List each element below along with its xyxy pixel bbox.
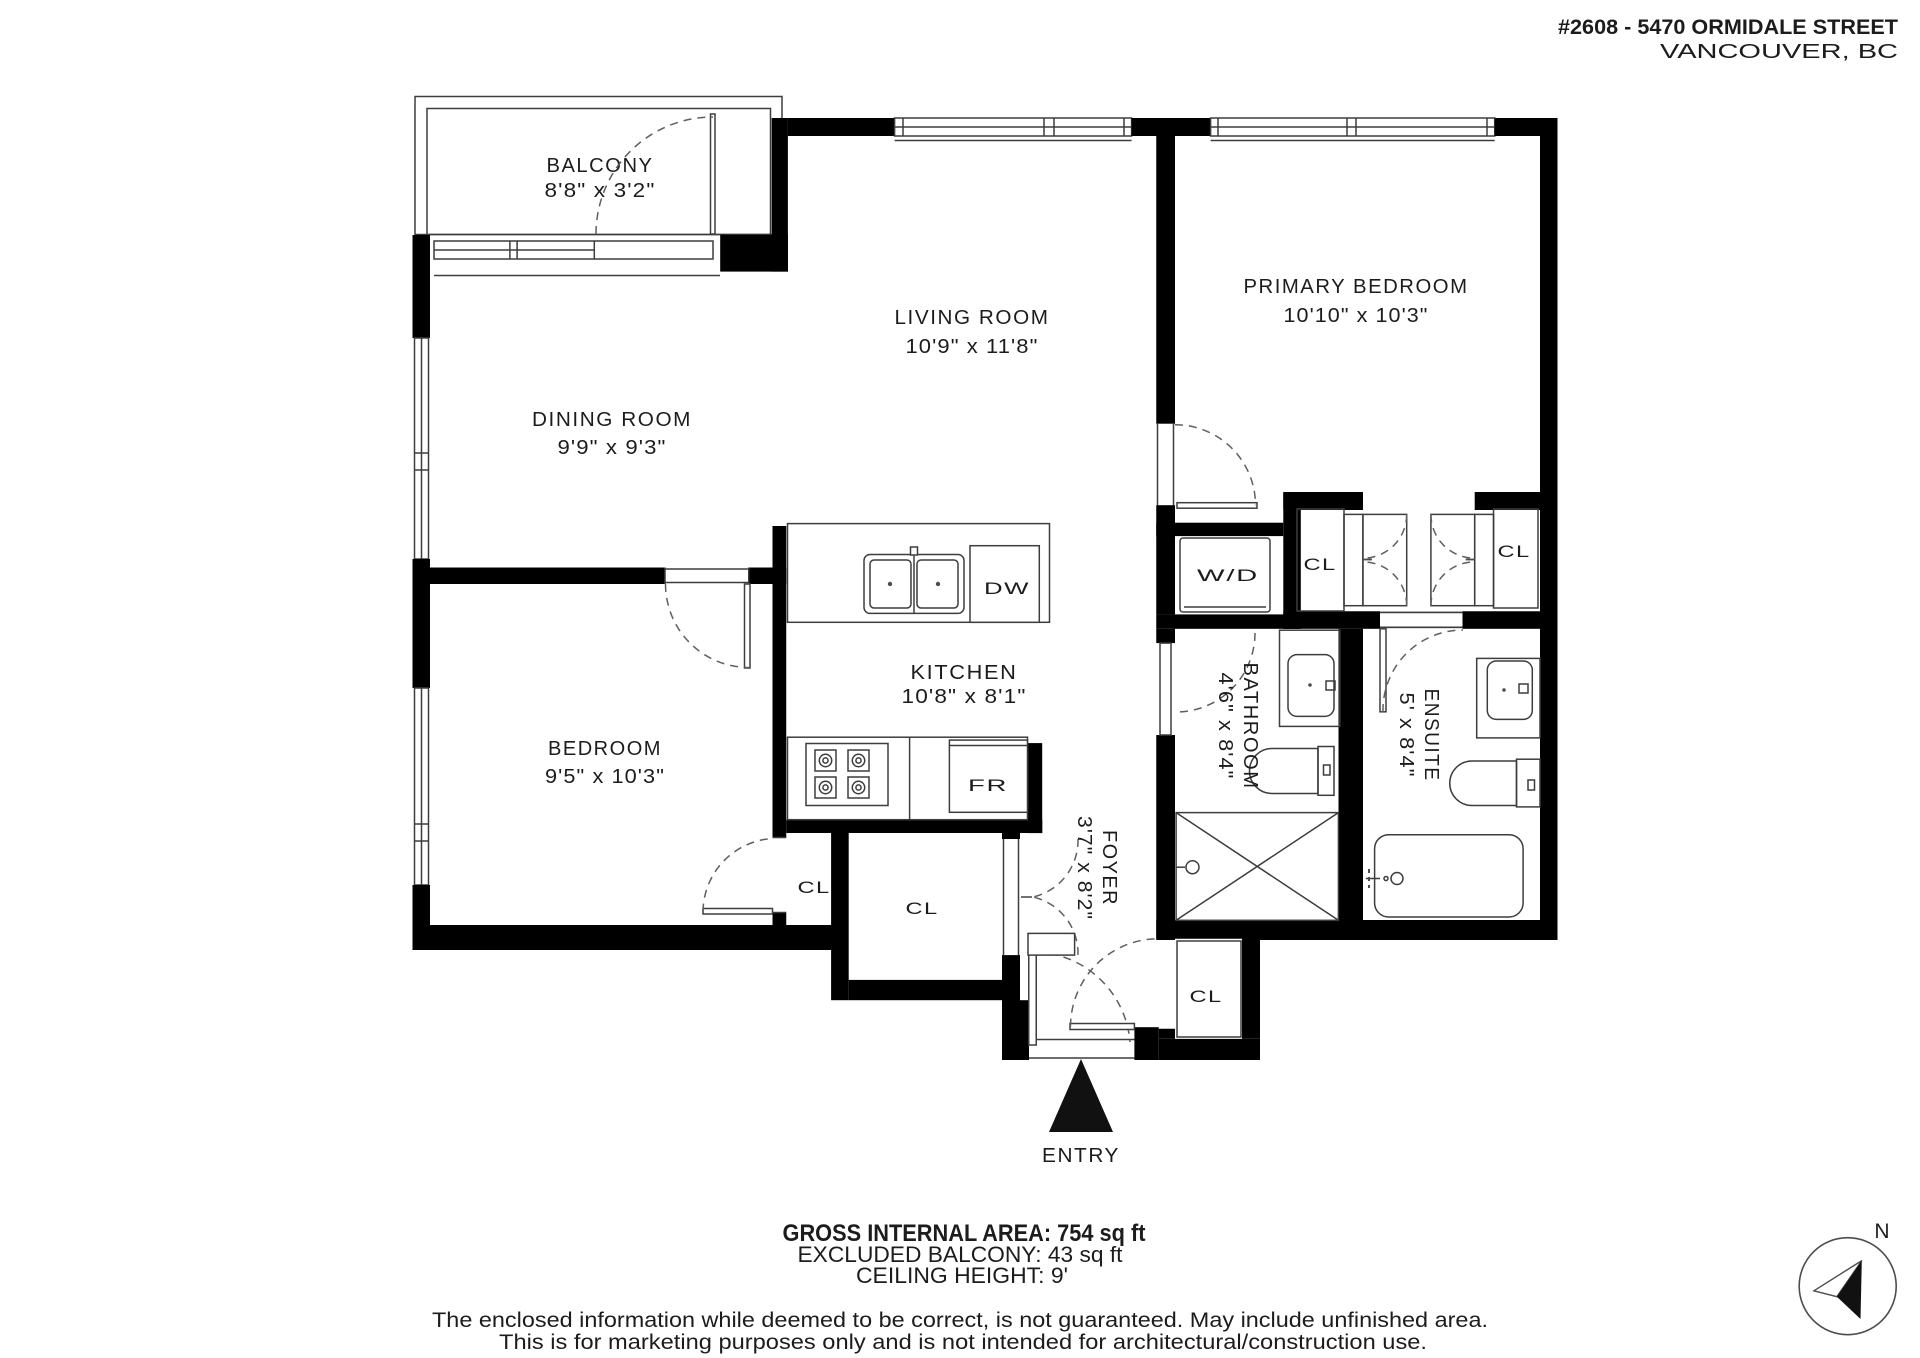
svg-text:4'6" x 8'4": 4'6" x 8'4" [1214,673,1236,780]
svg-text:ENSUITE: ENSUITE [1420,689,1442,782]
svg-text:W/D: W/D [1197,566,1259,585]
svg-text:10'9" x 11'8": 10'9" x 11'8" [906,336,1039,358]
svg-text:CL: CL [1304,555,1337,574]
svg-text:9'9" x 9'3": 9'9" x 9'3" [558,437,667,459]
svg-text:10'8" x 8'1": 10'8" x 8'1" [902,686,1027,708]
svg-text:8'8" x 3'2": 8'8" x 3'2" [545,180,656,202]
svg-text:3'7" x 8'2": 3'7" x 8'2" [1073,816,1095,920]
svg-text:KITCHEN: KITCHEN [911,662,1018,684]
svg-text:N: N [1874,1220,1889,1243]
svg-text:CEILING HEIGHT: 9': CEILING HEIGHT: 9' [856,1263,1068,1288]
svg-text:#2608 - 5470 ORMIDALE STREET: #2608 - 5470 ORMIDALE STREET [1558,16,1898,39]
svg-text:DINING ROOM: DINING ROOM [532,409,692,431]
svg-text:DW: DW [984,579,1030,598]
svg-text:5' x 8'4": 5' x 8'4" [1395,693,1417,778]
svg-text:BEDROOM: BEDROOM [548,738,662,760]
svg-text:BATHROOM: BATHROOM [1239,663,1261,790]
svg-text:FOYER: FOYER [1098,830,1120,906]
svg-text:CL: CL [1498,542,1531,561]
svg-text:10'10" x 10'3": 10'10" x 10'3" [1284,305,1429,327]
svg-text:FR: FR [968,776,1008,795]
svg-text:9'5" x 10'3": 9'5" x 10'3" [545,766,665,788]
svg-text:CL: CL [1190,987,1223,1006]
svg-text:CL: CL [906,899,939,918]
svg-text:LIVING ROOM: LIVING ROOM [895,307,1050,329]
svg-text:ENTRY: ENTRY [1042,1145,1120,1167]
svg-text:PRIMARY BEDROOM: PRIMARY BEDROOM [1244,276,1469,298]
svg-text:CL: CL [798,878,831,897]
svg-text:VANCOUVER, BC: VANCOUVER, BC [1660,41,1898,63]
svg-text:BALCONY: BALCONY [547,155,654,177]
svg-text:This is for marketing purposes: This is for marketing purposes only and … [499,1331,1427,1354]
svg-text:The enclosed information while: The enclosed information while deemed to… [432,1309,1488,1332]
